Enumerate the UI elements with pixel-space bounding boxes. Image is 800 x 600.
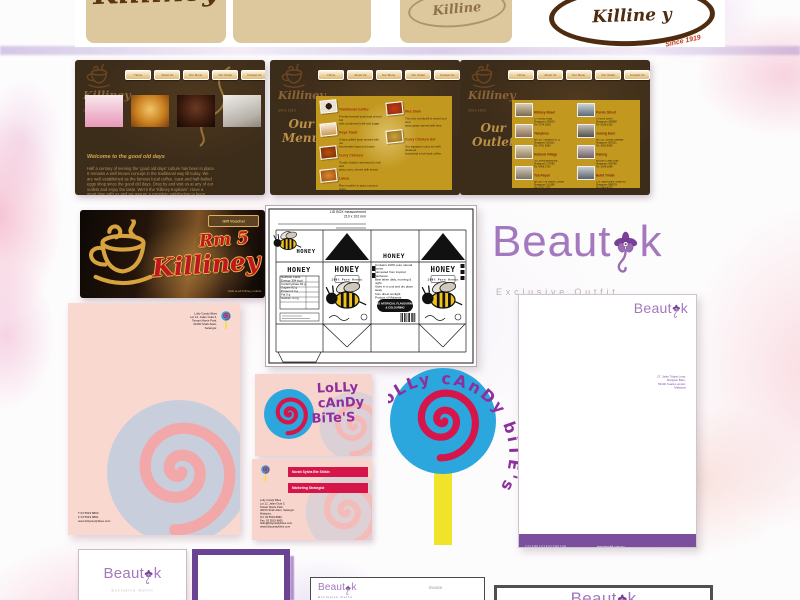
- nav-button-outlet: Our Outlet: [212, 70, 238, 80]
- killiney-logo-tile-sketch: Killine: [400, 0, 512, 43]
- honey-title: HONEY: [383, 252, 405, 260]
- honey-packaging-dieline: HONEY HONEY HONEY 100% Pure Honey HONEY …: [265, 205, 477, 367]
- nav-button-contact: Contact Us: [434, 70, 460, 80]
- orchid-flower-icon: [672, 301, 681, 322]
- beautik-name-right: k: [154, 566, 162, 581]
- killiney-site-logo-since: Since 1919: [468, 109, 486, 113]
- killiney-logo-tile-blank: [233, 0, 371, 43]
- card-title-bar: Marketing Strategist: [288, 483, 368, 493]
- killiney-logo-tile-script: Killiney: [86, 0, 226, 43]
- nav-button-menu: Our Menu: [183, 70, 209, 80]
- beautik-wordmark: Beaut k: [571, 590, 637, 600]
- beautik-name-left: Beaut: [492, 220, 611, 264]
- killiney-website-menu: Killiney Since 1919 Home About Us Our Me…: [270, 60, 460, 195]
- beautik-business-card: Beaut k Exclusive Outfit: [78, 549, 187, 600]
- beautik-purple-border-card: [192, 549, 290, 600]
- bee-mascot-icon: [422, 279, 462, 308]
- lolly-business-card: Norah Sylvia Bte Shikin Marketing Strate…: [252, 459, 372, 540]
- beautik-wordmark: Beaut k: [103, 566, 161, 589]
- food-photo-row: [85, 95, 261, 127]
- nav-button-outlet: Our Outlet: [405, 70, 431, 80]
- coffee-cup-icon: [83, 64, 115, 90]
- photo-mee-siam: [385, 101, 403, 116]
- site-nav-bar: Home About Us Our Menu Our Outlet Contac…: [318, 70, 460, 80]
- killiney-oval-logo-name: Killine y: [592, 5, 672, 28]
- photo-outlet-storefront: [515, 145, 533, 159]
- lolly-word-3: BiTe'S: [297, 411, 369, 428]
- beautik-wordmark: Beaut k: [492, 220, 662, 286]
- beautik-letterhead: Beaut k 27, Jalan Telawi Lima, Bangsar B…: [518, 294, 697, 548]
- killiney-website-outlets: Killiney Since 1919 Home About Us Our Me…: [460, 60, 650, 195]
- gift-voucher-tag: Gift Voucher: [208, 215, 259, 227]
- beautik-invoice: Beaut k Exclusive Outfit Invoice: [310, 577, 485, 600]
- lolly-logo-card: LoLLy cAnDy BiTe'S: [255, 374, 372, 456]
- footer-contact: T 03 2282 1117 F 03 2282 1118: [525, 545, 566, 547]
- footer-website: www.beautik.com.my: [597, 545, 624, 547]
- welcome-section: Welcome to the good old days Half a cent…: [87, 148, 259, 195]
- honey-title: HONEY: [334, 265, 359, 274]
- photo-toast-dish: [131, 95, 169, 127]
- letterhead-footer-bar: T 03 2282 1117 F 03 2282 1118 www.beauti…: [519, 534, 696, 547]
- nav-button-home: Home: [318, 70, 344, 80]
- killiney-logo-strip: Killiney Killine Killine y Since 1919: [75, 0, 725, 47]
- honey-sub-badge: 100% Pure Honey: [332, 277, 363, 281]
- photo-chocolate-dessert: [177, 95, 215, 127]
- coffee-cup-icon: [468, 64, 500, 90]
- orchid-flower-icon: [144, 566, 153, 589]
- beautik-name-left: Beaut: [571, 590, 617, 600]
- welcome-body: Half a century of serving the 'good old …: [87, 166, 257, 195]
- lollipop-logo: LoLLy cAnDy biTE's: [388, 357, 538, 545]
- lolly-brand-words: LoLLy cAnDy BiTe'S: [296, 381, 370, 428]
- nav-button-contact: Contact Us: [241, 70, 265, 80]
- letterhead-address: 27, Jalan Telawi Lima, Bangsar Baru, 591…: [622, 375, 686, 410]
- dieline-header-note: LID BOX measurement 210 x 102 mm: [278, 210, 366, 219]
- outlet-panel: Killiney Road 67 Killiney Road Singapore…: [512, 100, 640, 188]
- honey-sub-badge: 100% Pure Honey: [428, 277, 459, 281]
- nav-button-home: Home: [508, 70, 534, 80]
- nutrition-facts: Nutrition Facts Energy 304 kcal Carbohyd…: [281, 276, 319, 301]
- beautik-name-right: k: [640, 220, 663, 264]
- bee-mascot-icon: [274, 230, 302, 250]
- barcode-icon: [401, 313, 415, 322]
- killiney-site-logo-since: Since 1919: [278, 109, 296, 113]
- beautik-name-right: k: [352, 583, 357, 593]
- page-label-our-menu: Our Menu: [282, 118, 320, 146]
- photo-rice-dish: [223, 95, 261, 127]
- nav-button-menu: Our Menu: [376, 70, 402, 80]
- beautik-name-right: k: [628, 590, 637, 600]
- voucher-terms: Valid at all Killiney outlets: [194, 278, 261, 296]
- letterhead-address: Lolly Candy Bites Lot 12, Jalan Gula 3, …: [157, 312, 217, 355]
- lollipop-icon: [220, 311, 232, 333]
- orchid-flower-icon: [617, 590, 628, 600]
- portfolio-canvas: Killiney Killine Killine y Since 1919 Ki…: [0, 0, 800, 600]
- beautik-logo: Beaut k Exclusive Outfit: [492, 220, 720, 297]
- bee-mascot-icon: [326, 279, 366, 308]
- photo-kaya-toast: [319, 122, 337, 137]
- card-name-bar: Norah Sylvia Bte Shikin: [288, 467, 368, 477]
- nav-button-menu: Our Menu: [566, 70, 592, 80]
- killiney-gift-voucher: Gift Voucher Rm 5 Killiney Valid at all …: [80, 210, 265, 298]
- nav-button-contact: Contact Us: [624, 70, 650, 80]
- outlet-entry: Bukit Timah 170 Upper Bukit Timah Rd Sin…: [577, 166, 637, 188]
- honey-title: HONEY: [287, 266, 311, 274]
- welcome-heading: Welcome to the good old days: [87, 153, 165, 159]
- honey-description: Contains 100% pure natural honey harvest…: [375, 264, 418, 300]
- orchid-flower-icon: [612, 220, 639, 286]
- honey-claim-badge-line1: NO ARTIFICIAL FLAVOURING: [376, 302, 414, 306]
- beautik-name-left: Beaut: [634, 301, 672, 315]
- beautik-tagline: Exclusive Outfit: [318, 596, 353, 599]
- beautik-name-left: Beaut: [103, 566, 144, 581]
- spiral-watermark-icon: [104, 397, 240, 535]
- photo-outlet-storefront: [515, 166, 533, 180]
- photo-curry-set: [385, 129, 403, 144]
- photo-outlet-storefront: [577, 166, 595, 180]
- killiney-sketch-logo: Killine: [432, 0, 482, 19]
- photo-outlet-storefront: [577, 103, 595, 117]
- photo-curry-chicken: [319, 145, 337, 160]
- invoice-label: Invoice: [429, 586, 442, 590]
- beautik-wordmark: Beaut k: [634, 301, 688, 322]
- site-nav-bar: Home About Us Our Menu Our Outlet Contac…: [125, 70, 265, 80]
- coffee-cup-icon: [278, 64, 310, 90]
- site-nav-bar: Home About Us Our Menu Our Outlet Contac…: [508, 70, 650, 80]
- nav-button-about: About Us: [154, 70, 180, 80]
- honey-title: HONEY: [296, 249, 315, 255]
- killiney-sketch-oval: Killine: [407, 0, 508, 31]
- beautik-name-right: k: [681, 301, 688, 315]
- watercolor-band: [0, 46, 800, 55]
- lollipop-icon: [260, 465, 271, 485]
- menu-panel: Traditional Coffee Freshly brewed local …: [316, 96, 452, 190]
- killiney-site-logo-name: Killiney: [468, 90, 516, 101]
- photo-coffee: [319, 99, 337, 114]
- photo-outlet-storefront: [515, 124, 533, 138]
- page-label-our-outlet: Our Outlet: [472, 122, 514, 150]
- watercolor-streak: [290, 556, 294, 600]
- outlet-entry: Toa Payoh Blk 185 Toa Payoh Central Sing…: [515, 166, 575, 188]
- beautik-folder-card: Beaut k: [494, 585, 713, 600]
- photo-outlet-storefront: [515, 103, 533, 117]
- menu-item: Laksa Rice noodles in spicy coconut grav…: [320, 169, 384, 190]
- nav-button-outlet: Our Outlet: [595, 70, 621, 80]
- photo-outlet-storefront: [577, 124, 595, 138]
- lollipop-stick: [434, 469, 452, 545]
- photo-laksa: [319, 168, 337, 183]
- nav-button-about: About Us: [537, 70, 563, 80]
- killiney-script-logo: Killiney: [86, 0, 226, 11]
- killiney-website-home: Killiney Since 1919 Home About Us Our Me…: [75, 60, 265, 195]
- card-contact-info: Lolly Candy Bites Lot 12, Jalan Gula 3, …: [260, 499, 372, 529]
- killiney-logo-tile-oval: Killine y Since 1919: [543, 0, 715, 47]
- photo-outlet-storefront: [577, 145, 595, 159]
- menu-item: Curry Chicken Set Our signature curry se…: [386, 130, 450, 168]
- lollipop-illustration: LoLLy cAnDy biTE's: [388, 357, 538, 545]
- beautik-tagline: Exclusive Outfit: [100, 589, 164, 593]
- photo-pink-milkshake: [85, 95, 123, 127]
- beautik-name-left: Beaut: [318, 583, 345, 593]
- honey-title: HONEY: [430, 265, 455, 274]
- honey-claim-badge-line2: & COLOURING: [385, 306, 404, 310]
- lolly-letterhead: Lolly Candy Bites Lot 12, Jalan Gula 3, …: [68, 303, 240, 535]
- nav-button-about: About Us: [347, 70, 373, 80]
- nav-button-home: Home: [125, 70, 151, 80]
